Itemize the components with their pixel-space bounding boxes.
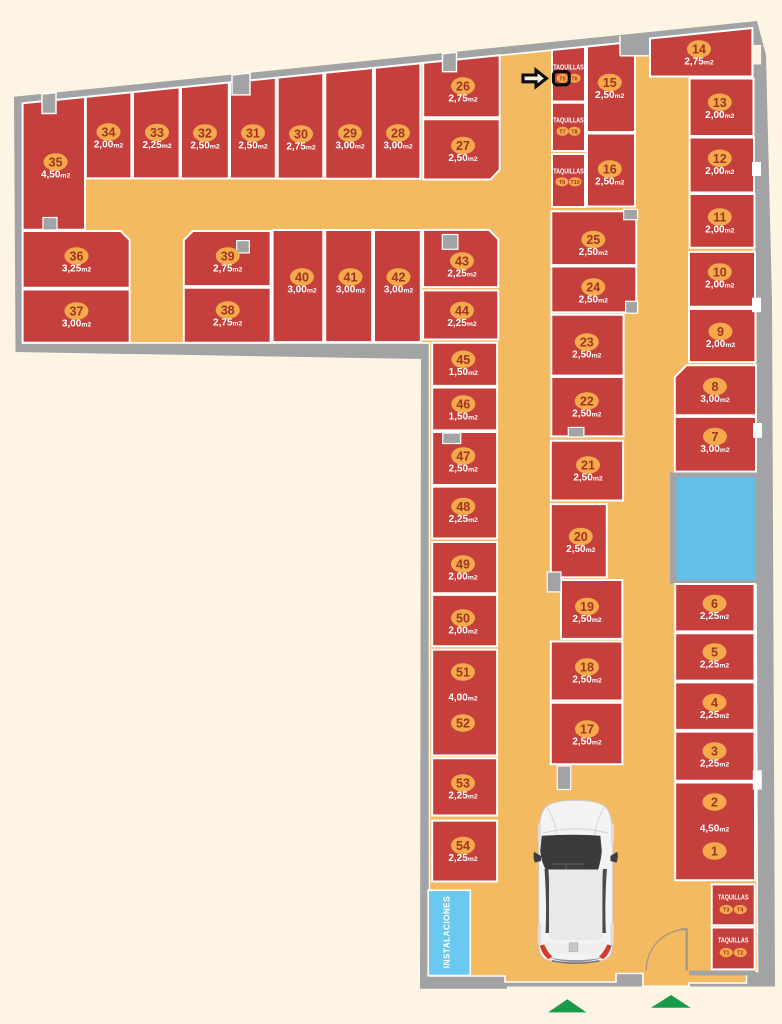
svg-text:32: 32: [198, 127, 212, 141]
svg-text:13: 13: [713, 96, 727, 110]
svg-text:26: 26: [456, 80, 470, 94]
svg-text:3: 3: [711, 745, 718, 759]
svg-text:54: 54: [456, 839, 470, 853]
svg-text:1: 1: [711, 845, 718, 859]
svg-text:8: 8: [712, 380, 719, 394]
svg-text:18: 18: [580, 661, 594, 675]
svg-text:27: 27: [456, 139, 470, 153]
svg-text:30: 30: [294, 128, 308, 142]
svg-text:36: 36: [70, 250, 84, 264]
svg-text:TAQUILLAS: TAQUILLAS: [553, 169, 584, 176]
svg-text:2: 2: [711, 796, 718, 810]
svg-text:51: 51: [456, 666, 470, 680]
svg-text:T3: T3: [723, 908, 729, 914]
svg-text:29: 29: [343, 127, 357, 141]
svg-text:14: 14: [692, 43, 706, 57]
svg-text:37: 37: [70, 305, 84, 319]
svg-text:T8: T8: [571, 129, 577, 135]
svg-text:TAQUILLAS: TAQUILLAS: [718, 895, 749, 902]
svg-text:25: 25: [586, 233, 600, 247]
svg-text:T7: T7: [559, 129, 565, 135]
svg-text:4: 4: [711, 696, 718, 710]
svg-text:24: 24: [586, 281, 600, 295]
svg-text:34: 34: [102, 126, 116, 140]
svg-text:6: 6: [711, 597, 718, 611]
svg-text:7: 7: [712, 430, 719, 444]
svg-text:10: 10: [713, 266, 727, 280]
svg-text:5: 5: [711, 646, 718, 660]
svg-text:T4: T4: [737, 908, 744, 914]
svg-text:T5: T5: [559, 77, 565, 83]
svg-text:41: 41: [344, 271, 358, 285]
svg-text:22: 22: [580, 395, 594, 409]
svg-text:44: 44: [455, 304, 469, 318]
svg-text:52: 52: [456, 717, 470, 731]
svg-text:16: 16: [603, 163, 617, 177]
svg-text:T9: T9: [559, 180, 565, 186]
svg-text:43: 43: [455, 255, 469, 269]
svg-text:45: 45: [456, 353, 470, 367]
svg-text:48: 48: [456, 500, 470, 514]
svg-text:20: 20: [574, 530, 588, 544]
svg-text:T10: T10: [570, 180, 579, 186]
svg-text:12: 12: [713, 152, 727, 166]
svg-text:17: 17: [580, 723, 594, 737]
svg-text:T1: T1: [723, 951, 729, 957]
svg-text:9: 9: [717, 325, 724, 339]
svg-text:11: 11: [713, 211, 726, 225]
svg-text:21: 21: [581, 459, 595, 473]
svg-text:TAQUILLAS: TAQUILLAS: [553, 118, 584, 125]
svg-text:47: 47: [456, 450, 470, 464]
svg-text:15: 15: [603, 76, 617, 90]
svg-text:39: 39: [221, 250, 235, 264]
svg-text:T6: T6: [571, 77, 577, 83]
svg-text:TAQUILLAS: TAQUILLAS: [718, 938, 749, 945]
svg-text:49: 49: [456, 558, 470, 572]
svg-text:50: 50: [456, 612, 470, 626]
svg-text:23: 23: [580, 336, 594, 350]
svg-text:42: 42: [392, 271, 406, 285]
svg-text:33: 33: [150, 126, 164, 140]
svg-text:40: 40: [295, 271, 309, 285]
svg-text:46: 46: [456, 398, 470, 412]
svg-text:19: 19: [580, 600, 594, 614]
svg-text:T2: T2: [737, 951, 743, 957]
svg-text:53: 53: [456, 777, 470, 791]
svg-text:31: 31: [246, 127, 260, 141]
svg-text:28: 28: [391, 127, 405, 141]
svg-text:38: 38: [221, 304, 235, 318]
svg-text:INSTALACIONES: INSTALACIONES: [442, 896, 452, 968]
svg-text:35: 35: [49, 156, 63, 170]
